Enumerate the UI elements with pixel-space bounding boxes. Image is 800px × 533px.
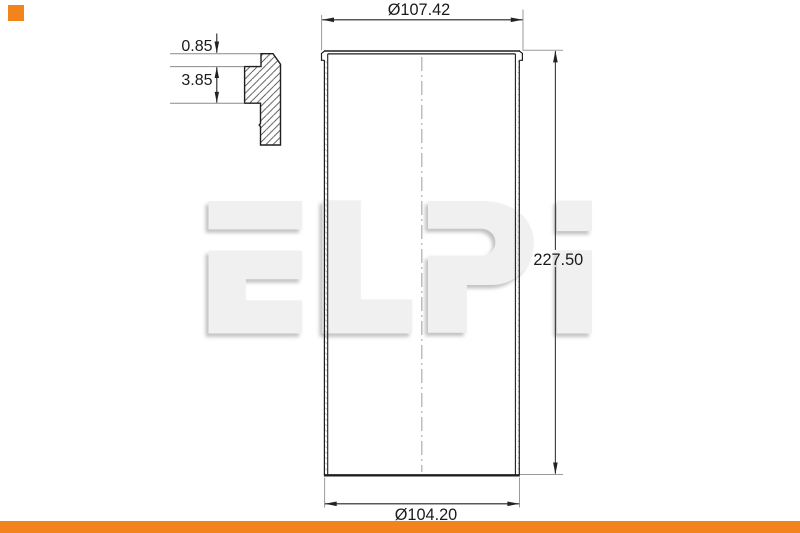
svg-text:227.50: 227.50 xyxy=(533,251,583,269)
svg-text:0.85: 0.85 xyxy=(181,38,212,55)
svg-text:3.85: 3.85 xyxy=(181,72,212,89)
svg-text:Ø107.42: Ø107.42 xyxy=(388,1,450,19)
